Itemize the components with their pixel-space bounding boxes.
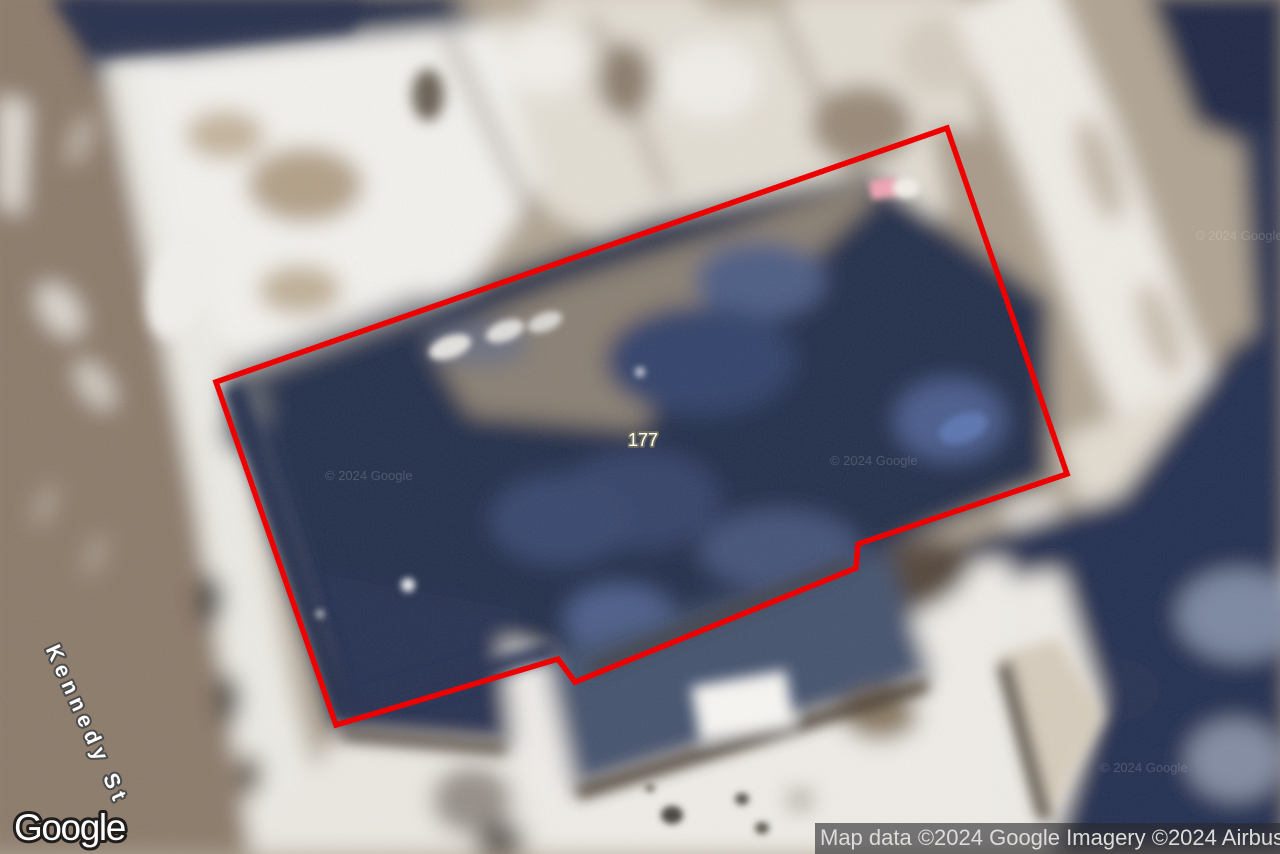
svg-text:© 2024 Google: © 2024 Google: [1100, 760, 1188, 775]
svg-text:© 2024 Google: © 2024 Google: [830, 453, 918, 468]
svg-text:Google: Google: [14, 807, 125, 848]
svg-text:177: 177: [628, 430, 658, 450]
svg-text:© 2024 Google: © 2024 Google: [325, 468, 413, 483]
svg-text:© 2024 Google: © 2024 Google: [1195, 228, 1280, 243]
